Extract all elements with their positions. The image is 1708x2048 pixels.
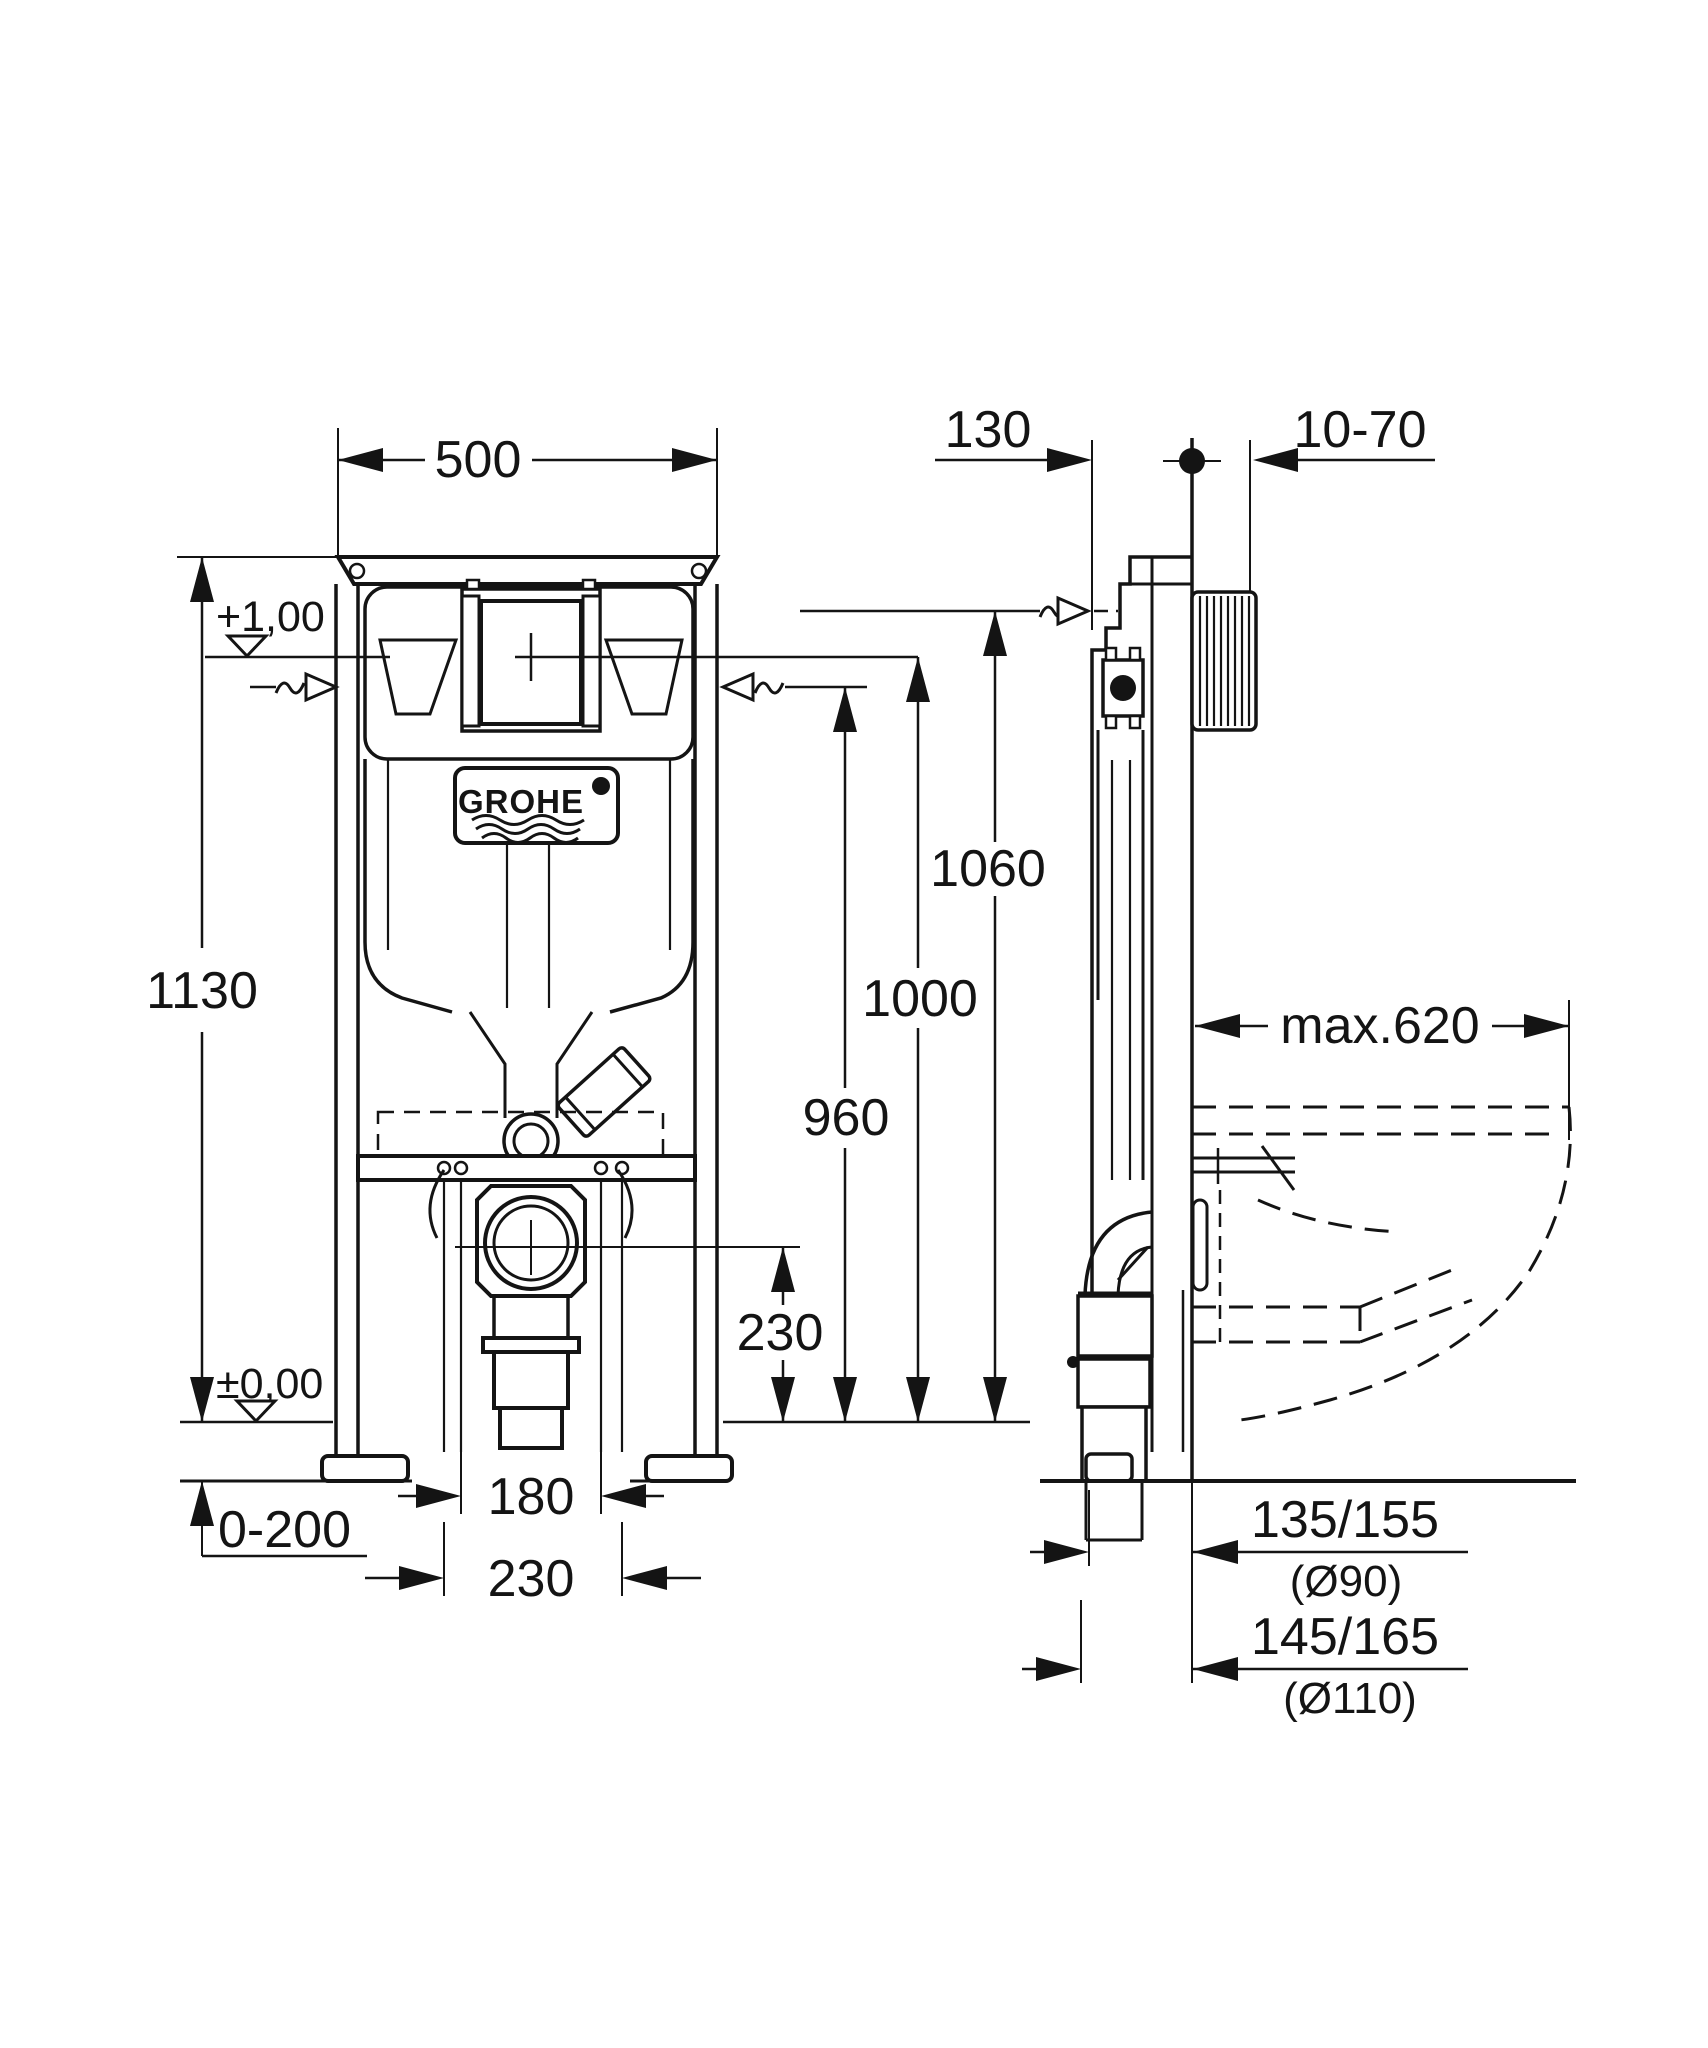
dim-label-130: 130 [945,401,1032,459]
flush-stub-break [1262,1146,1294,1190]
side-view [1067,438,1295,1540]
dimension-0-200: 0-200 [190,1481,367,1559]
level-triangle-icon [237,1401,275,1421]
installation-drawing: GROHE [0,0,1708,2048]
dimension-145-165: 145/165 (Ø110) [1022,1600,1468,1723]
dimension-max-620: max.620 [1195,997,1569,1140]
corrugated-sleeve [1192,592,1256,730]
frame-top-plate [338,557,717,584]
top-plate-screw-hole [692,564,706,578]
wc-bowl-dashed [1192,1107,1570,1420]
level-label-plus100: +1,00 [216,593,325,641]
side-foot [1086,1454,1132,1481]
dimension-1000: 1000 [862,657,978,1422]
brand-logo-text: GROHE [458,783,584,820]
drain-socket-body [494,1352,568,1408]
frame-crossbar [358,1156,695,1180]
dimension-180: 180 [398,1452,664,1526]
dim-label-500: 500 [435,431,522,489]
flush-window-bracket-left [462,596,479,726]
top-plate-screw-hole [350,564,364,578]
fixing-bolt [595,1162,607,1174]
grohe-logo-plate: GROHE [455,768,618,843]
dim-label-145-165: 145/165 [1251,1608,1439,1666]
dim-label-230-vertical: 230 [737,1304,824,1362]
dimension-500: 500 [338,428,717,555]
angled-connector [557,1046,652,1138]
technical-drawing-page: GROHE [0,0,1708,2048]
registered-mark-icon [592,777,610,795]
outlet-box-lower [1078,1359,1150,1407]
level-triangle-icon [228,636,266,656]
dim-label-180: 180 [488,1468,575,1526]
dim-label-135-155: 135/155 [1251,1491,1439,1549]
dim-label-1130: 1130 [146,962,258,1020]
wall-tab [1193,1200,1207,1290]
dim-label-1000: 1000 [862,970,978,1028]
dim-label-1060: 1060 [930,840,1046,898]
dim-label-diameter-90: (Ø90) [1290,1557,1402,1606]
dim-label-230-bottom: 230 [488,1550,575,1608]
front-view: GROHE [322,557,732,1481]
dimension-10-70: 10-70 [1250,401,1435,592]
frame-foot-left [322,1456,408,1481]
elbow-inner-arc [1118,1247,1152,1295]
dimension-230-bottom: 230 [365,1522,701,1608]
outlet-box-upper [1078,1296,1152,1356]
outlet-clip-dot [1067,1356,1079,1368]
bracket-tab [467,580,479,589]
fixing-bolt [455,1162,467,1174]
dim-label-960: 960 [803,1089,890,1147]
dimension-130: 130 [935,401,1092,630]
supply-connection-inner [514,1124,548,1158]
dim-label-10-70: 10-70 [1294,401,1427,459]
level-plus-1-00: +1,00 [216,593,325,656]
drain-socket-end [500,1408,562,1448]
drain-socket-flange [483,1338,579,1352]
bracket-tab [583,580,595,589]
dim-label-max-620: max.620 [1280,997,1479,1055]
dim-label-diameter-110: (Ø110) [1283,1674,1417,1723]
dim-label-0-200: 0-200 [218,1501,351,1559]
flush-window-bracket-right [583,596,600,726]
elbow-diagonal [1118,1247,1148,1280]
inlet-valve [1103,648,1143,728]
frame-foot-right [646,1456,732,1481]
level-zero: ±0,00 [216,1360,323,1421]
